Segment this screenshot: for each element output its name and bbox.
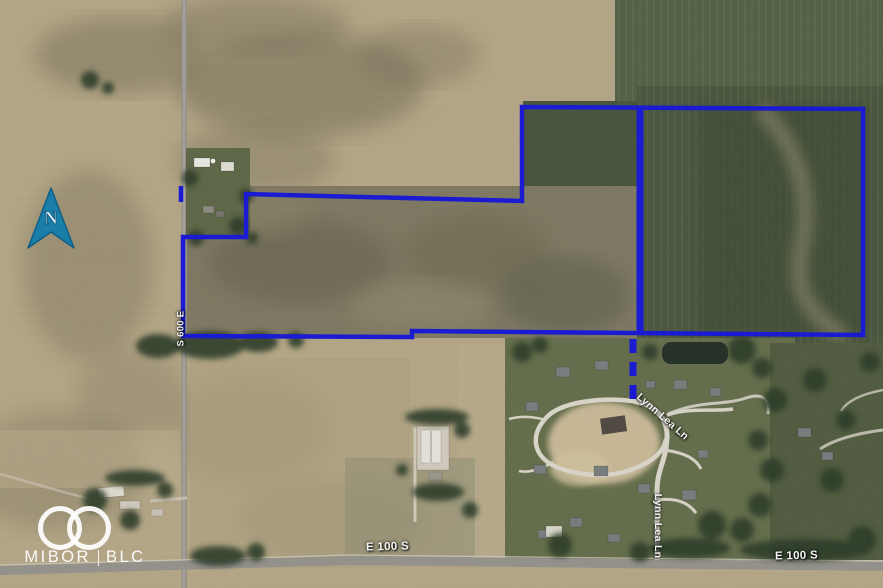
watermark-divider	[98, 550, 99, 566]
road-label-e100s-east: E 100 S	[775, 549, 818, 562]
watermark-text: MIBOR BLC	[22, 548, 148, 567]
road-label-s600e: S 600 E	[176, 300, 187, 358]
road-label-lynn-lea-lower: Lynn Lea Ln	[652, 489, 664, 563]
watermark-logo: MIBOR BLC	[20, 498, 150, 574]
north-arrow-icon: N	[26, 186, 76, 254]
aerial-parcel-map: N S 600 E Lynn Lea Ln Lynn Lea Ln E 100 …	[0, 0, 883, 588]
infinity-icon	[67, 506, 111, 550]
watermark-brand: MIBOR	[24, 548, 91, 567]
north-arrow-label: N	[44, 208, 58, 229]
road-label-e100s-west: E 100 S	[366, 540, 409, 553]
watermark-suffix: BLC	[106, 548, 146, 567]
